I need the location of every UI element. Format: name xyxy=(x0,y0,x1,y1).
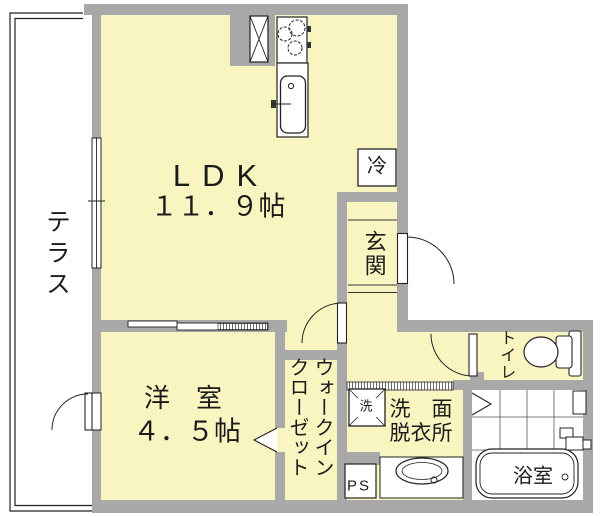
pipe-space-label: PS xyxy=(347,477,371,494)
entrance-label: 玄関 xyxy=(361,230,386,278)
toilet-label: トイレ xyxy=(496,330,514,381)
closet-label: ウォークイン クローゼット xyxy=(284,357,334,505)
vanity-sink-icon xyxy=(380,457,463,498)
washroom-label: 洗 面 脱衣所 xyxy=(390,398,453,446)
western-room-label: 洋 室 xyxy=(144,384,222,414)
western-room-size: ４．５帖 xyxy=(133,416,241,447)
stove-icon xyxy=(277,17,311,63)
refrigerator-label: 冷 xyxy=(367,156,387,179)
front-door xyxy=(398,234,455,285)
washer-label: 洗 xyxy=(359,400,372,415)
terrace-label: テラス xyxy=(42,209,71,302)
ldk-label: LDK xyxy=(173,158,269,194)
bathroom-label: 浴室 xyxy=(513,466,553,489)
floor-plan: テラス LDK １１．９帖 玄関 冷 洋 室 ４．５帖 ウォークイン クローゼッ… xyxy=(0,0,600,516)
terrace-door xyxy=(52,393,101,430)
kitchen-sink-icon xyxy=(271,63,308,137)
kitchen-vent-box xyxy=(250,16,268,62)
ldk-size: １１．９帖 xyxy=(151,191,286,222)
